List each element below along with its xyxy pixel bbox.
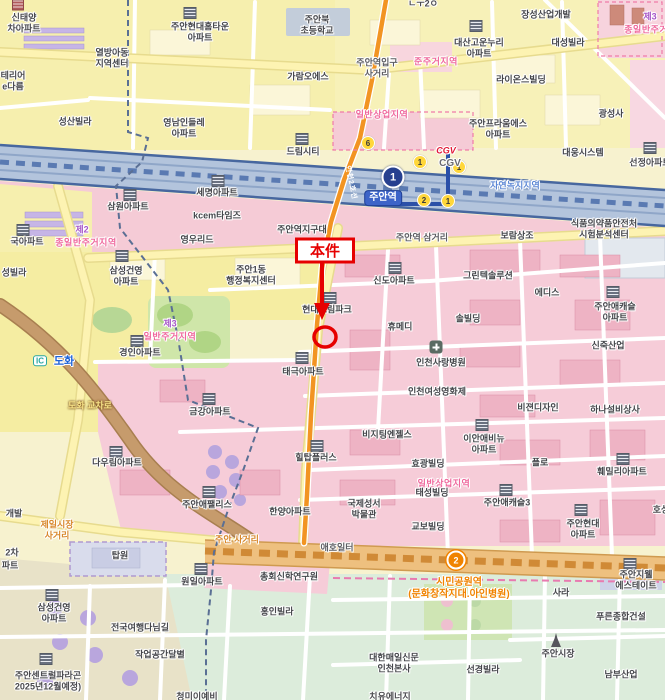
poi-daurim-apt: 다우림아파트 [92, 458, 142, 469]
poi-fda-test-center: 식품의약품안전처 시험분석센터 [571, 218, 637, 239]
poi-gyeongin-apt: 경인아파트 [119, 348, 160, 359]
poi-jangseong-industrial: 장성산업개발 [521, 10, 571, 21]
building-icon [116, 250, 129, 262]
poi-daehan-maeil-incheon: 대한매일신문 인천본사 [369, 652, 419, 673]
poi-workspace-dalbyeol: 작업공간달별 [135, 650, 185, 661]
label-layer: 1261121신태양 차아파트주안현대홈타운 아파트열방아동 지역센터테리어 e… [0, 0, 665, 700]
poi-daewoong-system: 대웅시스템 [562, 148, 603, 159]
poi-seonjeong-apt: 선정아파트 [629, 158, 665, 169]
building-icon [110, 446, 123, 458]
poi-nambu-industrial: 남부산업 [604, 670, 637, 681]
poi-terior-edareum: 테리어 e다름 [1, 70, 26, 91]
poi-lions-building: 라이온스빌딩 [496, 75, 546, 86]
building-icon [607, 286, 620, 298]
poi-juan-aepallis: 주안애팰리스 [182, 500, 232, 511]
zone-num-mid-left: 제3 [163, 319, 176, 330]
poi-seong-villa: 성빌라 [2, 268, 27, 279]
poi-topwon: 탑원 [112, 551, 129, 562]
zone-commercial-top: 일반상업지역 [356, 110, 409, 121]
poi-cgv: CGV [439, 158, 461, 170]
poi-seonkyeong-villa: 선경빌라 [466, 665, 499, 676]
zone-jong2-left: 종일반주거지역 [55, 238, 116, 249]
road-juanyeok-ipgu-sageori: 주안역입구 사거리 [356, 57, 397, 78]
poi-edis: 에디스 [535, 288, 560, 299]
poi-incheon-women-film: 인천여성영화제 [408, 387, 466, 398]
zone-jong3-top-right: 종일반주거지역 [624, 25, 665, 36]
building-icon [476, 419, 489, 431]
poi-hongin-villa: 홍인빌라 [260, 607, 293, 618]
poi-taeseong-building: 태성빌딩 [415, 488, 448, 499]
poi-2cha: 2차 [5, 548, 18, 559]
building-icon [296, 352, 309, 364]
road-dohwa: 도화 [54, 356, 74, 369]
building-icon [624, 558, 637, 570]
poi-sindo-apt: 신도아파트 [373, 276, 414, 287]
zone-natural-green: 자연녹지지역 [490, 181, 540, 192]
poi-wonil-apt: 원일아파트 [181, 577, 222, 588]
poi-kyobo-building: 교보빌딩 [411, 522, 444, 533]
poi-greentek-solution: 그린텍솔루션 [463, 271, 513, 282]
building-icon [131, 335, 144, 347]
poi-travel-trail: 전국여행다님길 [111, 623, 169, 634]
poi-hyogwang-building: 효광빌딩 [411, 459, 444, 470]
building-icon [124, 189, 137, 201]
poi-sol-building: 솔빌딩 [456, 314, 481, 325]
clipped-label-bottom-2: 치유에너지 [369, 692, 410, 700]
poi-samwon-apt: 삼원아파트 [107, 202, 148, 213]
building-icon [12, 0, 24, 11]
poi-juan1dong-center: 주안1동 행정복지센터 [226, 264, 276, 285]
poi-juan-market: 주안시장 [541, 649, 574, 660]
poi-ian-avenue-apt: 이안애비뉴 아파트 [463, 433, 504, 454]
building-icon [40, 653, 53, 665]
poi-hoseong: 호성 [653, 505, 665, 516]
building-icon [203, 486, 216, 498]
building-icon [500, 484, 513, 496]
logo-cgv: CGV [436, 146, 456, 157]
road-dohwa-gyocharo: 도화 교차로 [68, 401, 112, 412]
building-icon [311, 440, 324, 452]
station-tag-juan[interactable]: 주안역 [364, 190, 402, 206]
poi-semyeong-apt: 세명아파트 [196, 188, 237, 199]
line2-station-badge[interactable]: 2 [447, 551, 466, 570]
poi-humedi: 휴메디 [388, 322, 413, 333]
poi-sara: 사라 [553, 588, 570, 599]
poi-vision-design: 비젼디자인 [517, 403, 558, 414]
station-simin-park-name[interactable]: 시민공원역 (문화창작지대.아인병원) [408, 577, 509, 601]
building-icon [617, 453, 630, 465]
poi-boram-sangjo: 보람상조 [500, 231, 533, 242]
poi-samsung-gunyoung-apt-2: 삼성건영 아파트 [37, 602, 70, 623]
poi-taegeuk-apt: 태극아파트 [282, 367, 323, 378]
clipped-label-top: ㄴㅜ2ㅇ [408, 0, 438, 9]
poi-geumgang-apt: 금강아파트 [189, 407, 230, 418]
poi-chonghoe-seminary: 총회신학연구원 [260, 572, 318, 583]
poi-gaebal: 개발 [6, 509, 23, 520]
building-icon [195, 563, 208, 575]
road-juanyeok-samgeori: 주안역 삼거리 [396, 233, 448, 244]
building-icon [389, 262, 402, 274]
poi-juan-hyundai-apt: 주안현대 아파트 [566, 518, 599, 539]
poi-seongsan-villa: 성산빌라 [58, 117, 91, 128]
exit-badge-1a: 1 [413, 155, 427, 169]
poi-sintaeyang-apt: 신태양 차아파트 [7, 12, 40, 33]
poi-daeseong-villa: 대성빌라 [551, 38, 584, 49]
poi-hyundai-dreampark: 현대드림파크 [302, 305, 352, 316]
poi-hanyang-apt: 한양아파트 [269, 507, 310, 518]
poi-kcem-times: kcem타임즈 [193, 211, 241, 222]
poi-juan-ecastle3: 주안애캐슬3 [484, 498, 530, 509]
building-icon [575, 504, 588, 516]
poi-bible-museum: 국제성서 박물관 [347, 498, 380, 519]
poi-juan-hyundai-hometown-apt: 주안현대홈타운 아파트 [171, 21, 229, 42]
building-icon [17, 224, 30, 236]
poi-juan-ecastle-apt: 주안애캐슬 아파트 [594, 301, 635, 322]
building-icon [296, 133, 309, 145]
poi-garam-oes: 가람오에스 [287, 72, 328, 83]
road-aeho-ilteo: 애호일터 [320, 543, 353, 554]
poi-incheon-sarang-hospital: 인천사랑병원 [416, 358, 466, 369]
poi-gwangseongsa: 광성사 [599, 109, 624, 120]
exit-badge-2: 2 [417, 193, 431, 207]
poi-yeolbang-children-center: 열방아동 지역센터 [95, 47, 128, 68]
zone-num-left: 제2 [75, 225, 88, 236]
zone-junjugeo: 준주거지역 [414, 57, 458, 68]
poi-juanbuk-elementary: 주안북 초등학교 [300, 14, 333, 35]
poi-dream-city: 드림시티 [286, 147, 319, 158]
poi-juan-gwel-estate: 주안지웰 에스테이트 [615, 569, 656, 590]
poi-pureun-construction: 푸른종합건설 [596, 612, 646, 623]
building-icon [212, 175, 225, 187]
clipped-label-bottom-1: 청미이예비 [176, 692, 217, 700]
exit-badge-1c: 1 [441, 194, 455, 208]
building-icon [203, 393, 216, 405]
building-icon [184, 7, 197, 19]
poi-juanyeok-jigudae: 주안역지구대 [277, 225, 327, 236]
poi-sinjuk-industrial: 신죽산업 [591, 341, 624, 352]
poi-daesan-gounnuri-apt: 대산고운누리 아파트 [454, 37, 504, 58]
building-icon [470, 20, 483, 32]
line2-name: 인천2호선 [342, 165, 357, 201]
line1-station-badge[interactable]: 1 [382, 166, 405, 189]
poi-visiting-angels: 비지팅엔젤스 [362, 430, 412, 441]
map-canvas[interactable]: 1261121신태양 차아파트주안현대홈타운 아파트열방아동 지역센터테리어 e… [0, 0, 665, 700]
exit-badge-6: 6 [361, 136, 375, 150]
road-juan-sageori: 주안 사거리 [215, 535, 259, 546]
poi-juan-praum-es-apt: 주안프라움에스 아파트 [469, 118, 527, 139]
zone-num-top-right: 제3 [643, 12, 656, 23]
poi-pateu: 파트 [2, 561, 19, 572]
road-jeil-market-sageori: 제일시장 사거리 [40, 519, 73, 540]
zone-residential-mid-left: 일반주거지역 [144, 332, 197, 343]
poi-family-apt: 훼밀리아파트 [597, 467, 647, 478]
poi-flo: 플로 [532, 458, 549, 469]
poi-hana-facility: 하나설비상사 [590, 405, 640, 416]
hospital-icon [430, 341, 443, 354]
poi-guk-apt: 국아파트 [10, 237, 43, 248]
poi-samsung-gunyoung-apt-1: 삼성건영 아파트 [109, 265, 142, 286]
poi-yeongurid: 영우리드 [180, 235, 213, 246]
poi-juan-central-paragon: 주안센트럴파라곤 2025년12월예정) [15, 670, 81, 691]
market-tower-icon [551, 633, 561, 647]
poi-hilltop-plus: 힐탑플러스 [295, 453, 336, 464]
badge-ic-dohwa: IC [33, 355, 47, 366]
building-icon [324, 292, 337, 304]
building-icon [46, 589, 59, 601]
building-icon [644, 142, 657, 154]
poi-yeongnam-indeulle-apt: 영남인들레 아파트 [163, 117, 204, 138]
